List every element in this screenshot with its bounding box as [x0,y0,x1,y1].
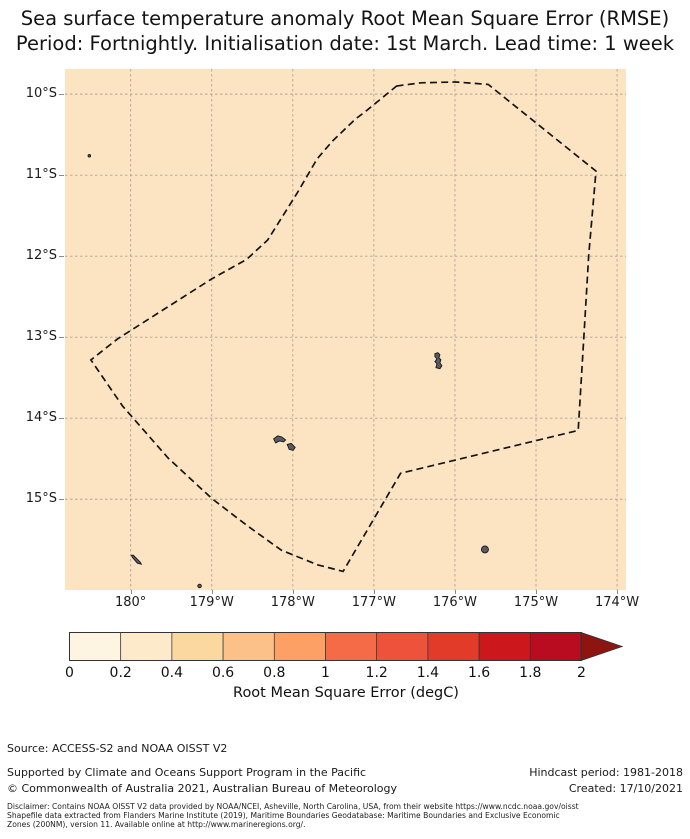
x-tick-label-176: 176°W [423,595,487,610]
colorbar-tick-1.2: 1.2 [355,665,399,681]
colorbar-tick-2: 2 [560,665,604,681]
colorbar-tick-0.8: 0.8 [252,665,296,681]
x-tick-label-174: 174°W [585,595,649,610]
y-tick-mark [59,337,64,338]
colorbar-tick-1.8: 1.8 [508,665,552,681]
colorbar-tick-1: 1 [304,665,348,681]
island-alofi [287,443,295,450]
map-svg [65,69,626,590]
colorbar-cell-4 [274,633,325,661]
x-tick-label-175: 175°W [504,595,568,610]
x-tick-mark [212,590,213,594]
y-tick-label-12s: 12°S [0,248,57,263]
y-tick-label-14s: 14°S [0,410,57,425]
figure-subtitle: Period: Fortnightly. Initialisation date… [0,31,690,56]
x-tick-label-180: 180° [99,595,163,610]
colorbar-tick-0.2: 0.2 [99,665,143,681]
x-tick-mark [536,590,537,594]
disclaimer-line-1: Disclaimer: Contains NOAA OISST V2 data … [7,802,690,811]
figure-title: Sea surface temperature anomaly Root Mea… [0,6,690,31]
colorbar-tick-0.4: 0.4 [150,665,194,681]
island-qelelevu [198,584,202,588]
y-tick-mark [59,94,64,95]
disclaimer-line-3: Zones (200NM), version 11. Available onl… [7,820,690,829]
x-tick-mark [617,590,618,594]
colorbar-tick-1.4: 1.4 [406,665,450,681]
hindcast-period-text: Hindcast period: 1981-2018 [529,766,683,779]
created-date-text: Created: 17/10/2021 [569,782,683,795]
x-tick-mark [374,590,375,594]
x-tick-mark [131,590,132,594]
x-tick-mark [293,590,294,594]
colorbar-cell-0 [70,633,121,661]
y-tick-label-10s: 10°S [0,86,57,101]
colorbar-cell-8 [479,633,530,661]
island-cikobia [131,555,141,564]
y-tick-label-11s: 11°S [0,167,57,182]
colorbar-cell-1 [121,633,172,661]
colorbar-cell-9 [530,633,581,661]
y-tick-mark [59,499,64,500]
y-tick-label-13s: 13°S [0,329,57,344]
colorbar-cell-2 [172,633,223,661]
supported-by-text: Supported by Climate and Oceans Support … [7,766,366,779]
disclaimer-line-2: Shapefile data extracted from Flanders M… [7,811,690,820]
island-niuafoou [481,546,488,553]
eez-boundary-dashed [91,82,596,571]
colorbar-tick-0: 0 [48,665,92,681]
colorbar-svg [65,631,627,665]
x-tick-label-177: 177°W [342,595,406,610]
colorbar-cell-3 [223,633,274,661]
map-canvas [65,69,626,590]
colorbar-tick-1.6: 1.6 [457,665,501,681]
colorbar-tick-0.6: 0.6 [201,665,245,681]
colorbar-over-arrow [581,633,622,661]
island-wallis [435,353,442,369]
lat-lon-gridlines [65,69,626,590]
colorbar [65,631,627,665]
colorbar-cell-6 [377,633,428,661]
colorbar-cell-5 [326,633,377,661]
y-tick-label-15s: 15°S [0,491,57,506]
y-tick-mark [59,256,64,257]
source-text: Source: ACCESS-S2 and NOAA OISST V2 [7,742,227,755]
island-futuna [274,436,286,443]
x-tick-mark [455,590,456,594]
islands-group [88,154,488,587]
colorbar-cells [70,633,582,661]
x-tick-label-179: 179°W [180,595,244,610]
colorbar-cell-7 [428,633,479,661]
colorbar-axis-label: Root Mean Square Error (degC) [65,685,627,701]
island-niulakita [88,154,91,157]
x-tick-label-178: 178°W [261,595,325,610]
y-tick-mark [59,418,64,419]
copyright-text: © Commonwealth of Australia 2021, Austra… [7,782,397,795]
y-tick-mark [59,175,64,176]
